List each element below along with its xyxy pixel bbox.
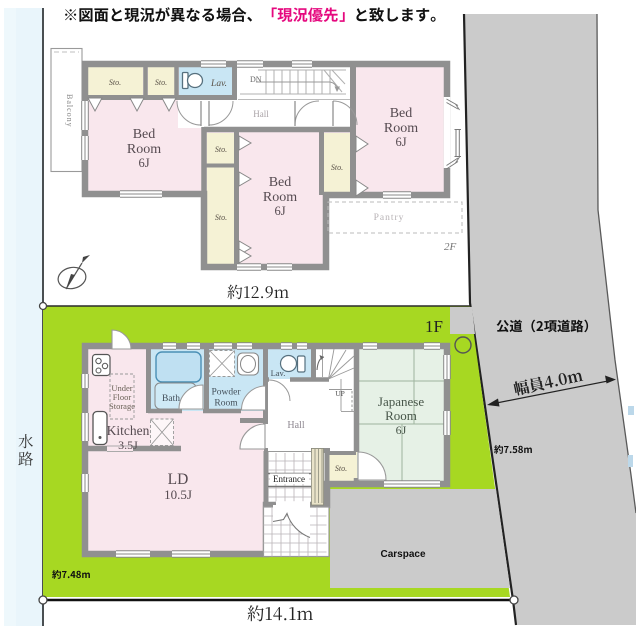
- svg-text:1F: 1F: [425, 317, 443, 336]
- svg-text:Hall: Hall: [253, 109, 269, 119]
- svg-text:Balcony: Balcony: [65, 94, 74, 128]
- svg-text:6J: 6J: [274, 204, 285, 218]
- svg-text:Pantry: Pantry: [374, 213, 405, 223]
- svg-text:3.5J: 3.5J: [118, 438, 138, 452]
- svg-text:Bath: Bath: [162, 394, 180, 404]
- svg-text:6J: 6J: [138, 156, 149, 170]
- svg-text:LD: LD: [168, 471, 189, 488]
- svg-text:Room: Room: [214, 399, 238, 409]
- svg-text:Lav.: Lav.: [210, 79, 227, 89]
- svg-text:Kitchen: Kitchen: [107, 423, 150, 438]
- svg-text:Hall: Hall: [287, 420, 304, 431]
- svg-text:UP: UP: [335, 389, 345, 398]
- svg-text:Room: Room: [385, 408, 417, 423]
- svg-text:Sto.: Sto.: [155, 78, 167, 87]
- svg-text:Entrance: Entrance: [273, 474, 305, 484]
- svg-text:Room: Room: [384, 121, 418, 136]
- svg-text:Bed: Bed: [390, 106, 413, 121]
- svg-text:Sto.: Sto.: [335, 464, 347, 473]
- svg-text:6J: 6J: [395, 135, 406, 149]
- svg-text:Sto.: Sto.: [331, 163, 343, 172]
- svg-text:Carspace: Carspace: [380, 549, 425, 560]
- svg-text:Room: Room: [263, 190, 297, 205]
- svg-text:10.5J: 10.5J: [164, 487, 192, 502]
- svg-text:Lav.: Lav.: [271, 368, 286, 378]
- svg-text:Room: Room: [127, 142, 161, 157]
- svg-text:Bed: Bed: [269, 175, 292, 190]
- svg-text:Sto.: Sto.: [109, 78, 121, 87]
- svg-text:Storage: Storage: [109, 401, 135, 411]
- svg-text:6J: 6J: [396, 423, 407, 437]
- svg-text:Bed: Bed: [133, 127, 156, 142]
- svg-text:Sto.: Sto.: [215, 145, 227, 154]
- svg-text:Sto.: Sto.: [215, 213, 227, 222]
- svg-text:DN: DN: [250, 75, 262, 84]
- svg-text:Powder: Powder: [211, 388, 241, 398]
- svg-text:2F: 2F: [444, 241, 457, 253]
- svg-text:Japanese: Japanese: [378, 394, 424, 409]
